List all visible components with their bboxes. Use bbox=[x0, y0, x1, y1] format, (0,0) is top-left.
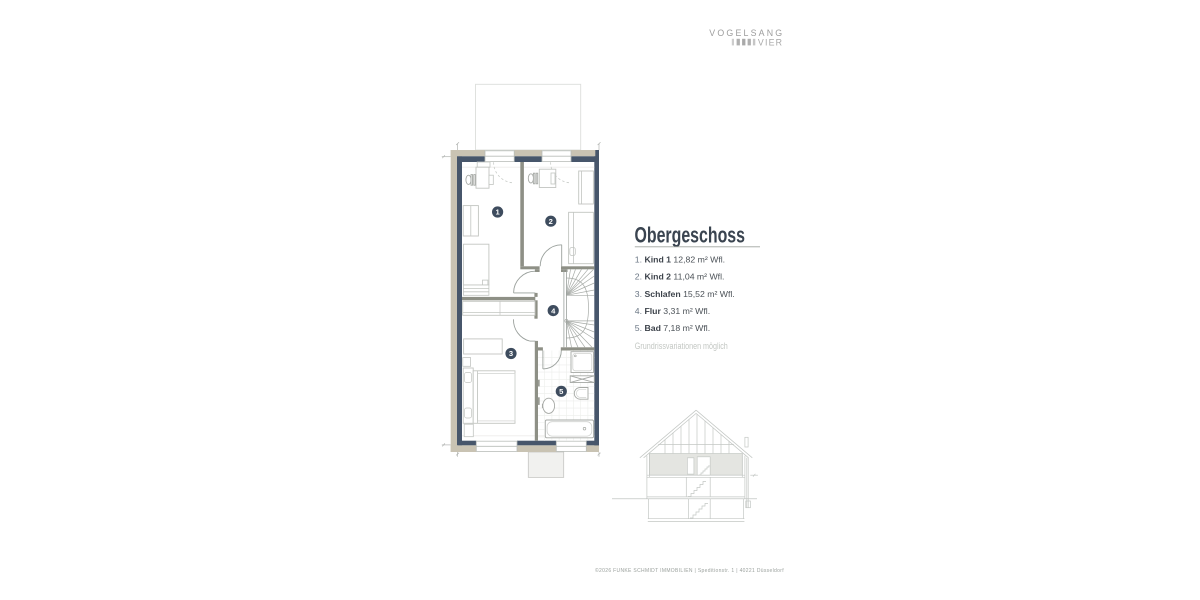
svg-text:VIER: VIER bbox=[758, 37, 783, 47]
svg-text:Grundrissvariationen möglich: Grundrissvariationen möglich bbox=[635, 341, 728, 351]
svg-text:2. Kind 2 11,04 m² Wfl.: 2. Kind 2 11,04 m² Wfl. bbox=[635, 272, 725, 282]
svg-text:VOGELSANG: VOGELSANG bbox=[709, 28, 784, 38]
svg-text:1. Kind 1 12,82 m² Wfl.: 1. Kind 1 12,82 m² Wfl. bbox=[635, 254, 725, 264]
svg-text:3. Schlafen 15,52 m² Wfl.: 3. Schlafen 15,52 m² Wfl. bbox=[635, 289, 735, 299]
svg-text:5. Bad 7,18 m² Wfl.: 5. Bad 7,18 m² Wfl. bbox=[635, 323, 710, 333]
svg-text:2: 2 bbox=[549, 217, 553, 226]
svg-text:Obergeschoss: Obergeschoss bbox=[635, 222, 746, 247]
svg-text:3: 3 bbox=[509, 349, 513, 358]
svg-text:4. Flur 3,31 m² Wfl.: 4. Flur 3,31 m² Wfl. bbox=[635, 306, 710, 316]
svg-text:©2026 FUNKE SCHMIDT IMMOBILIEN: ©2026 FUNKE SCHMIDT IMMOBILIEN | Spediti… bbox=[595, 567, 784, 574]
